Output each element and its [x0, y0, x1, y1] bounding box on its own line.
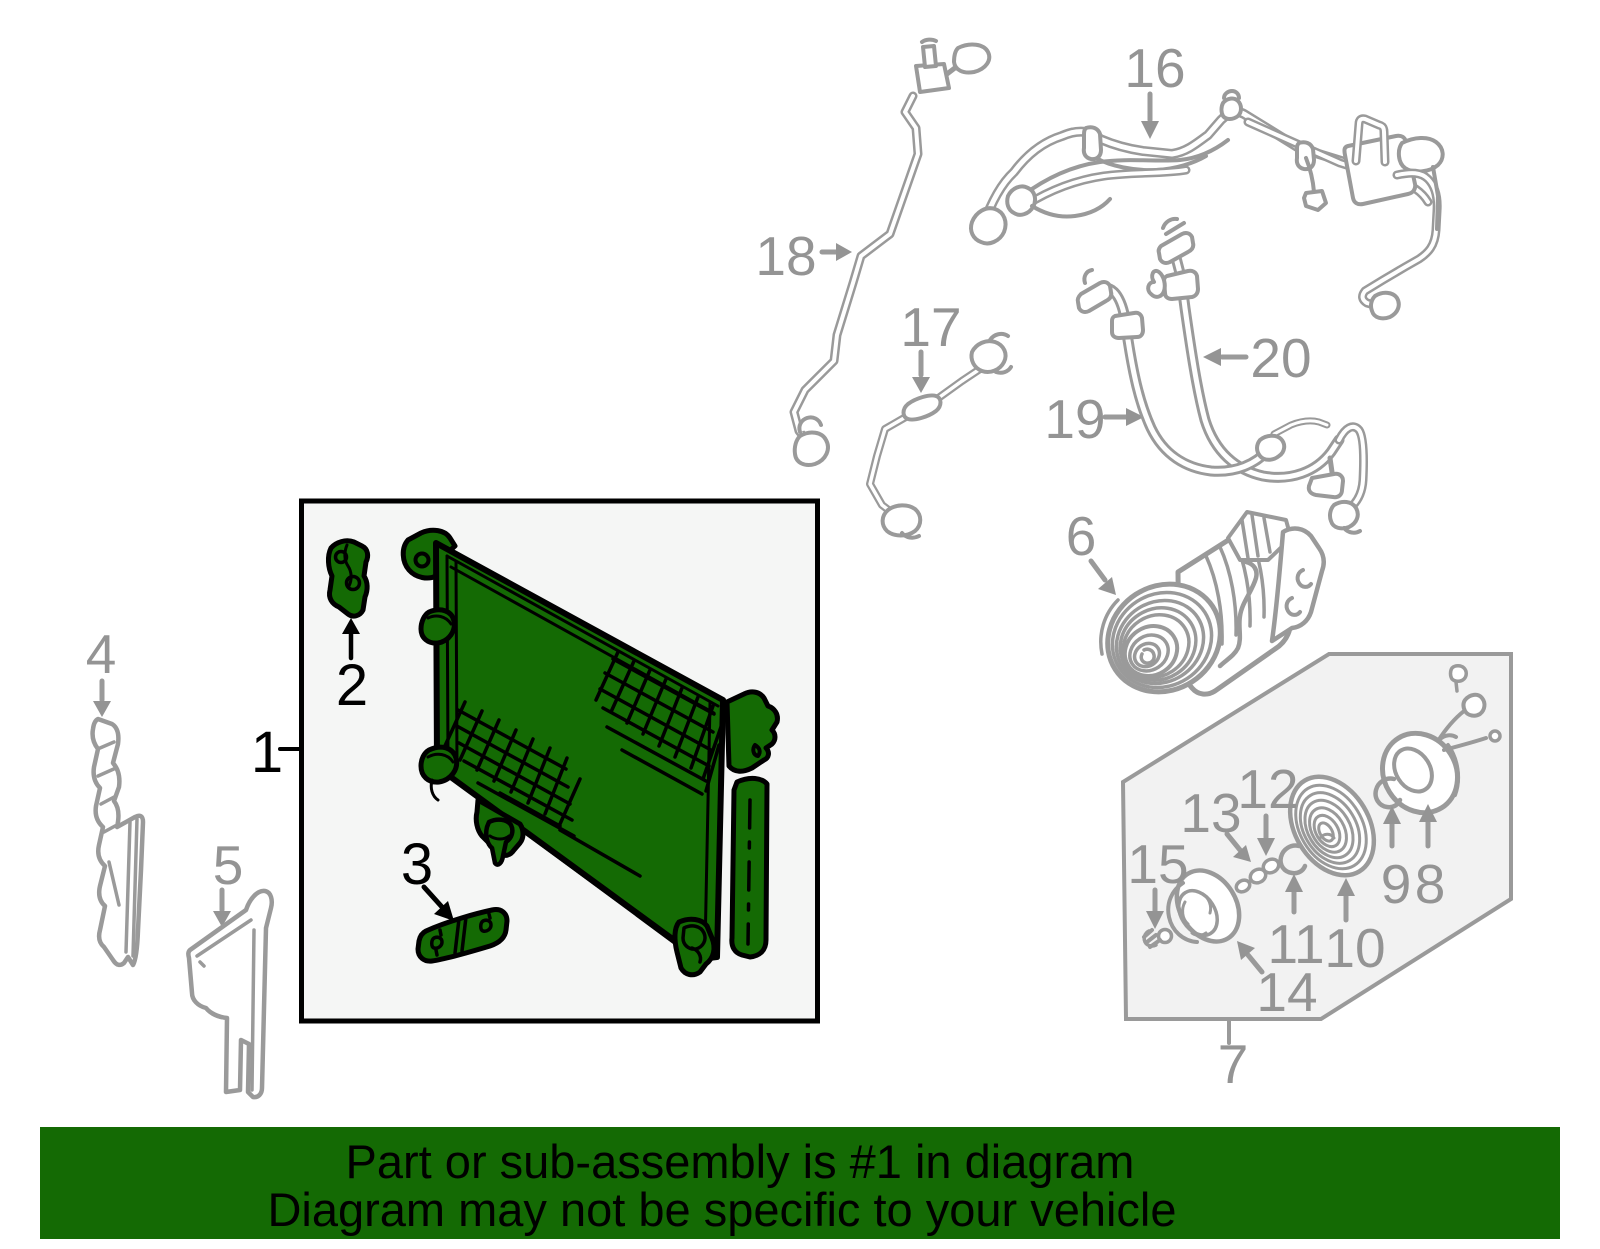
svg-text:5: 5	[213, 834, 244, 896]
svg-text:16: 16	[1124, 37, 1185, 99]
svg-text:20: 20	[1250, 327, 1311, 389]
svg-text:9: 9	[1381, 853, 1412, 915]
svg-text:2: 2	[336, 653, 368, 718]
svg-text:4: 4	[86, 623, 117, 685]
svg-text:13: 13	[1180, 782, 1241, 844]
svg-text:6: 6	[1066, 505, 1097, 567]
svg-text:19: 19	[1044, 388, 1105, 450]
svg-text:14: 14	[1256, 961, 1317, 1023]
svg-text:3: 3	[401, 832, 433, 897]
svg-text:10: 10	[1324, 917, 1385, 979]
svg-text:15: 15	[1127, 833, 1188, 895]
svg-text:18: 18	[755, 225, 816, 287]
svg-text:Part or sub-assembly is #1 in: Part or sub-assembly is #1 in diagram	[346, 1135, 1135, 1188]
svg-text:12: 12	[1237, 758, 1298, 820]
svg-text:1: 1	[251, 720, 283, 785]
svg-text:17: 17	[900, 296, 961, 358]
svg-text:Diagram may not be specific to: Diagram may not be specific to your vehi…	[267, 1183, 1176, 1236]
svg-text:7: 7	[1218, 1033, 1249, 1095]
svg-text:8: 8	[1415, 853, 1446, 915]
